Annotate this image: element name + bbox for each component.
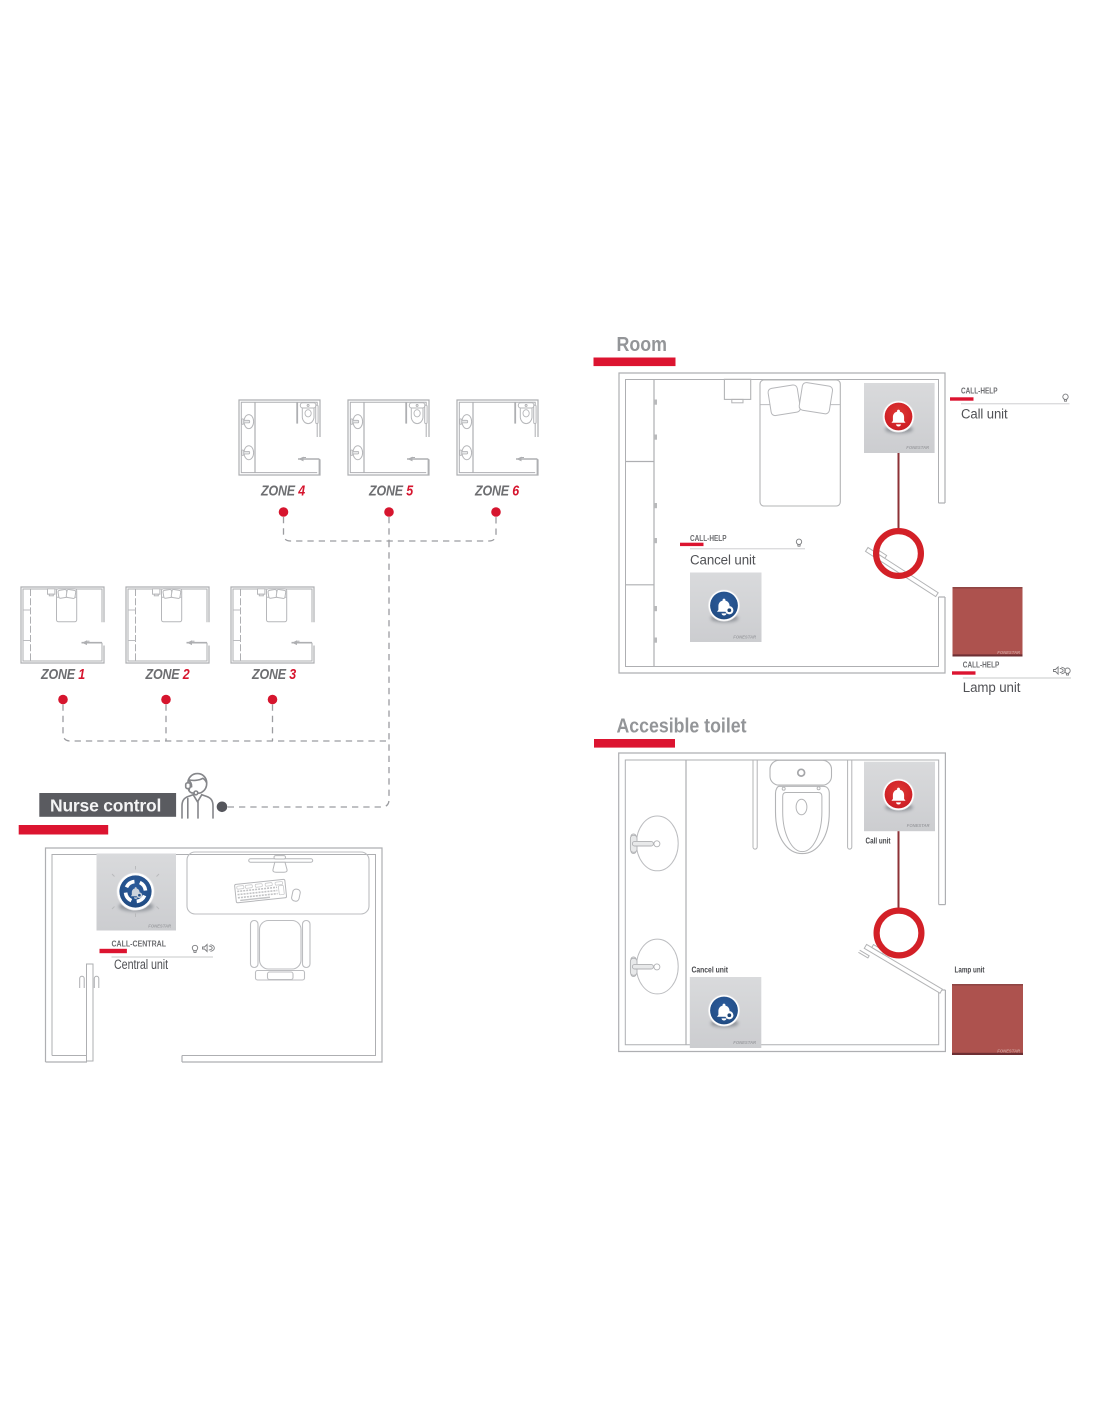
svg-text:Central unit: Central unit [114, 957, 168, 972]
svg-text:FONESTAR: FONESTAR [997, 1048, 1020, 1053]
svg-text:CALL-HELP: CALL-HELP [963, 661, 1000, 670]
svg-text:CALL-HELP: CALL-HELP [690, 534, 727, 543]
svg-text:ZONE 5: ZONE 5 [368, 483, 414, 500]
svg-text:FONESTAR: FONESTAR [997, 650, 1020, 655]
svg-text:ZONE 3: ZONE 3 [251, 666, 297, 683]
svg-text:Cancel unit: Cancel unit [690, 553, 756, 568]
svg-text:FONESTAR: FONESTAR [148, 924, 171, 929]
svg-text:CALL-HELP: CALL-HELP [961, 387, 998, 396]
svg-text:ZONE 4: ZONE 4 [260, 483, 306, 500]
svg-text:ZONE 1: ZONE 1 [40, 666, 85, 683]
svg-text:Nurse control: Nurse control [50, 796, 161, 816]
svg-text:Lamp unit: Lamp unit [963, 680, 1021, 695]
svg-text:Room: Room [617, 334, 668, 356]
svg-text:Call unit: Call unit [961, 406, 1008, 421]
svg-text:FONESTAR: FONESTAR [733, 1040, 756, 1045]
svg-text:FONESTAR: FONESTAR [906, 445, 929, 450]
svg-text:Call unit: Call unit [866, 837, 891, 846]
svg-text:Lamp unit: Lamp unit [955, 966, 985, 975]
svg-text:FONESTAR: FONESTAR [907, 823, 930, 828]
svg-text:ZONE 2: ZONE 2 [145, 666, 191, 683]
svg-text:CALL-CENTRAL: CALL-CENTRAL [112, 940, 167, 949]
svg-text:ZONE 6: ZONE 6 [474, 483, 520, 500]
svg-text:FONESTAR: FONESTAR [733, 635, 756, 640]
svg-text:Cancel unit: Cancel unit [692, 966, 729, 975]
svg-text:Accesible toilet: Accesible toilet [617, 716, 747, 738]
